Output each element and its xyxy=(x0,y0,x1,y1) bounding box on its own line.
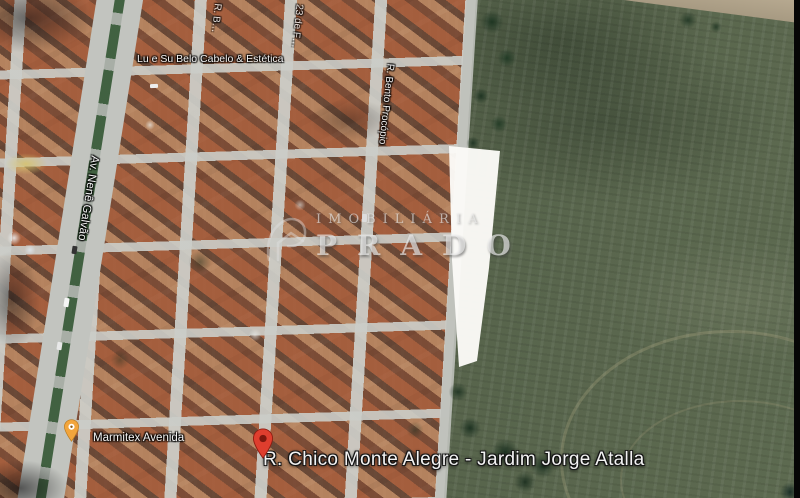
food-poi-pin-icon[interactable] xyxy=(63,419,80,442)
address-caption: R. Chico Monte Alegre - Jardim Jorge Ata… xyxy=(263,449,644,471)
right-black-edge xyxy=(794,0,800,498)
satellite-map-canvas[interactable]: IMOBILIÁRIA PRADO Lu e Su Belo Cabelo & … xyxy=(0,0,800,498)
watermark-line2: PRADO xyxy=(316,229,531,262)
watermark-text: IMOBILIÁRIA PRADO xyxy=(316,212,531,262)
poi-label-salon[interactable]: Lu e Su Belo Cabelo & Estética xyxy=(137,53,284,65)
red-map-pin-icon[interactable] xyxy=(252,428,274,459)
watermark-logo-icon xyxy=(264,212,308,264)
realtor-watermark: IMOBILIÁRIA PRADO xyxy=(264,212,564,274)
poi-label-food[interactable]: Marmitex Avenida xyxy=(93,432,184,444)
watermark-line1: IMOBILIÁRIA xyxy=(316,212,531,227)
